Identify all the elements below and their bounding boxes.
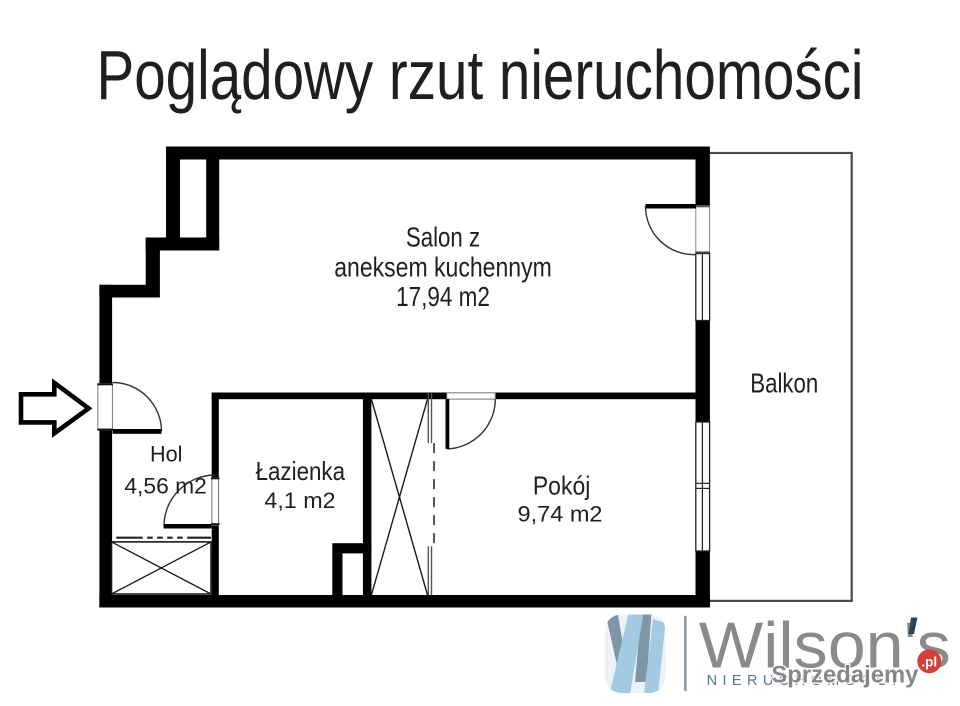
svg-text:Poglądowy rzut nieruchomości: Poglądowy rzut nieruchomości (97, 36, 864, 114)
svg-text:4,56 m2: 4,56 m2 (124, 474, 207, 499)
svg-text:Pokój: Pokój (533, 470, 591, 500)
svg-text:Salon z: Salon z (406, 222, 480, 253)
svg-text:Balkon: Balkon (750, 368, 818, 399)
svg-text:4,1 m2: 4,1 m2 (264, 488, 335, 513)
svg-text:aneksem kuchennym: aneksem kuchennym (334, 251, 552, 282)
svg-text:Hol: Hol (150, 442, 183, 467)
svg-text:Łazienka: Łazienka (256, 456, 346, 486)
svg-text:Sprzedajemy: Sprzedajemy (771, 662, 919, 689)
svg-text:9,74 m2: 9,74 m2 (518, 501, 603, 526)
svg-text:17,94 m2: 17,94 m2 (396, 281, 490, 312)
svg-text:.pl: .pl (921, 655, 937, 670)
